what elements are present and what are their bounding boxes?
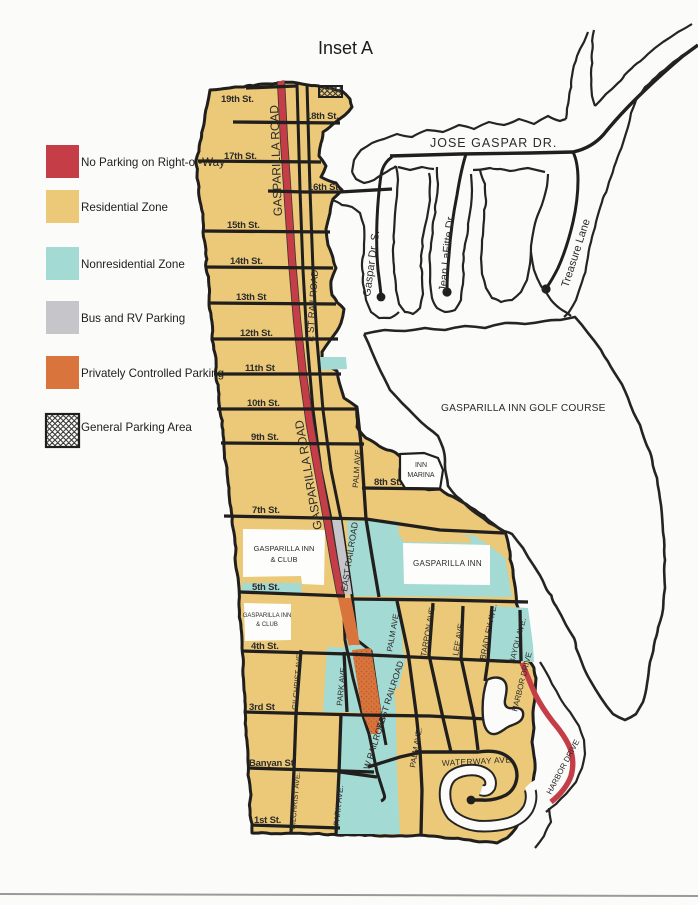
svg-text:18th St.: 18th St. — [306, 111, 339, 122]
svg-text:3rd St: 3rd St — [249, 702, 276, 713]
svg-text:GASPARILLA INN: GASPARILLA INN — [243, 613, 292, 619]
svg-text:Privately Controlled Parking: Privately Controlled Parking — [81, 367, 224, 380]
svg-text:7th St.: 7th St. — [252, 505, 280, 516]
svg-text:Bus and RV Parking: Bus and RV Parking — [81, 312, 185, 325]
svg-text:Banyan St.: Banyan St. — [249, 758, 296, 769]
svg-text:14th St.: 14th St. — [230, 256, 263, 267]
svg-text:11th St: 11th St — [245, 363, 276, 374]
svg-text:8th St.: 8th St. — [374, 477, 402, 488]
svg-text:15th St.: 15th St. — [227, 220, 260, 231]
svg-text:MARINA: MARINA — [407, 472, 435, 479]
svg-text:17th St.: 17th St. — [224, 151, 257, 162]
svg-text:& CLUB: & CLUB — [256, 622, 278, 628]
svg-text:INN: INN — [415, 462, 427, 469]
svg-text:GASPARILLA INN: GASPARILLA INN — [254, 544, 315, 553]
svg-text:JOSE GASPAR DR.: JOSE GASPAR DR. — [430, 136, 557, 150]
svg-text:General Parking Area: General Parking Area — [81, 421, 192, 434]
svg-text:19th St.: 19th St. — [221, 94, 254, 105]
svg-text:16th St.: 16th St. — [308, 182, 341, 193]
svg-text:5th St.: 5th St. — [252, 582, 280, 593]
svg-text:Residential Zone: Residential Zone — [81, 201, 168, 214]
svg-text:GASPARILLA INN: GASPARILLA INN — [413, 559, 482, 568]
svg-text:Inset A: Inset A — [318, 38, 373, 58]
svg-text:4th St.: 4th St. — [251, 641, 279, 652]
svg-text:& CLUB: & CLUB — [270, 555, 297, 564]
svg-text:GASPARILLA INN GOLF COURSE: GASPARILLA INN GOLF COURSE — [441, 403, 606, 414]
svg-text:13th St: 13th St — [236, 292, 267, 303]
svg-text:Nonresidential Zone: Nonresidential Zone — [81, 258, 185, 271]
svg-text:1st St.: 1st St. — [254, 815, 281, 826]
svg-text:9th St.: 9th St. — [251, 432, 279, 443]
svg-text:10th St.: 10th St. — [247, 398, 280, 409]
svg-text:No Parking on Right-of-Way: No Parking on Right-of-Way — [81, 156, 225, 169]
svg-text:12th St.: 12th St. — [240, 328, 273, 339]
